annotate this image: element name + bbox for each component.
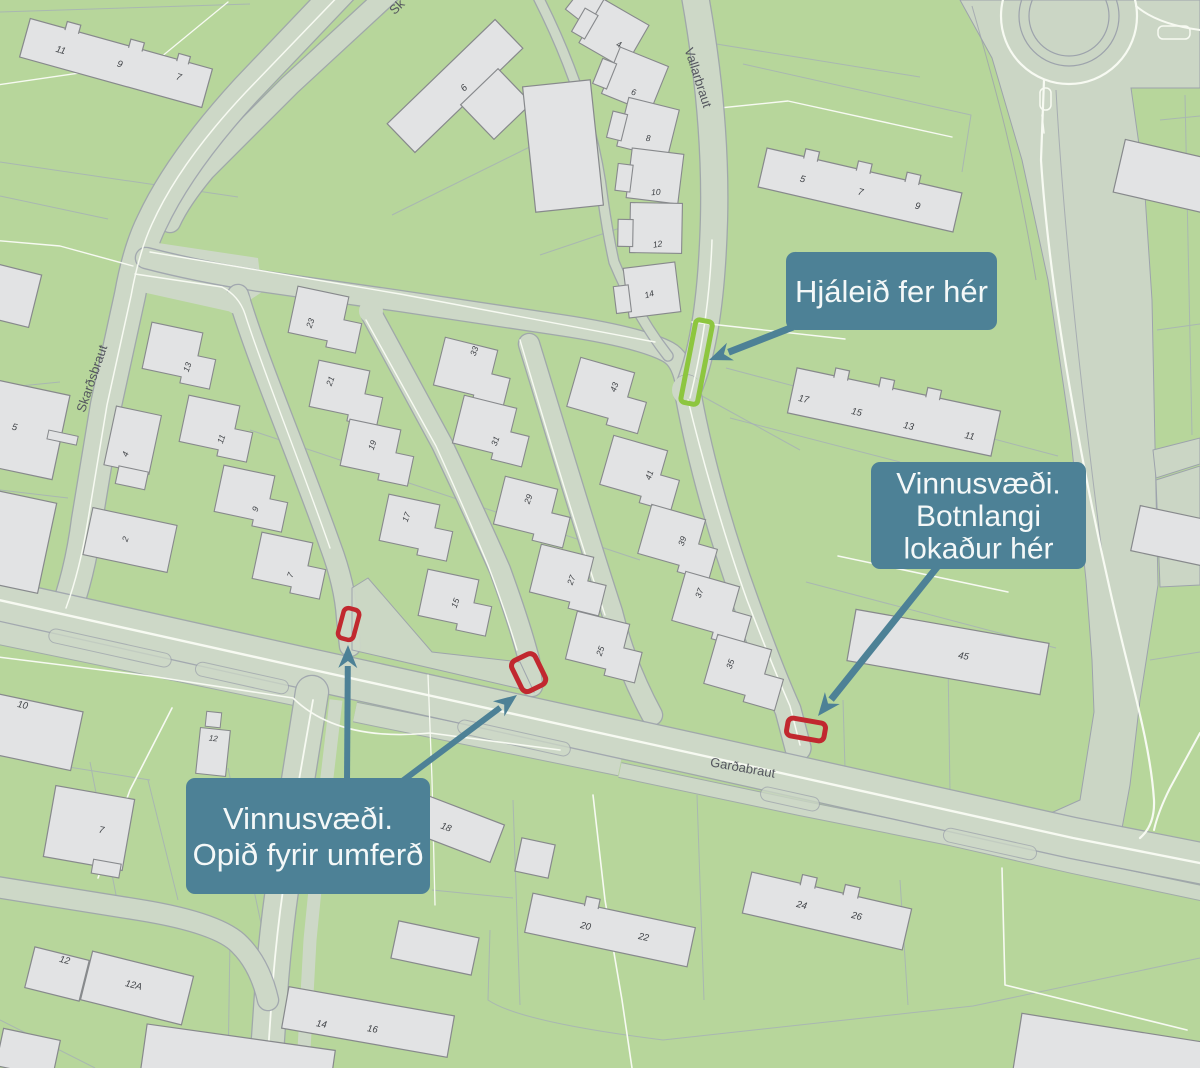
svg-text:lokaður hér: lokaður hér <box>903 533 1053 566</box>
svg-text:12: 12 <box>208 734 218 744</box>
svg-text:10: 10 <box>651 187 661 197</box>
svg-text:12: 12 <box>652 238 663 249</box>
svg-text:Opið fyrir umferð: Opið fyrir umferð <box>193 837 424 872</box>
svg-text:Vinnusvæði.: Vinnusvæði. <box>223 801 393 836</box>
svg-text:Hjáleið fer hér: Hjáleið fer hér <box>795 274 988 309</box>
svg-text:14: 14 <box>315 1018 327 1031</box>
svg-text:8: 8 <box>645 133 651 143</box>
svg-text:Botnlangi: Botnlangi <box>916 500 1041 533</box>
svg-text:Vinnusvæði.: Vinnusvæði. <box>896 468 1061 501</box>
